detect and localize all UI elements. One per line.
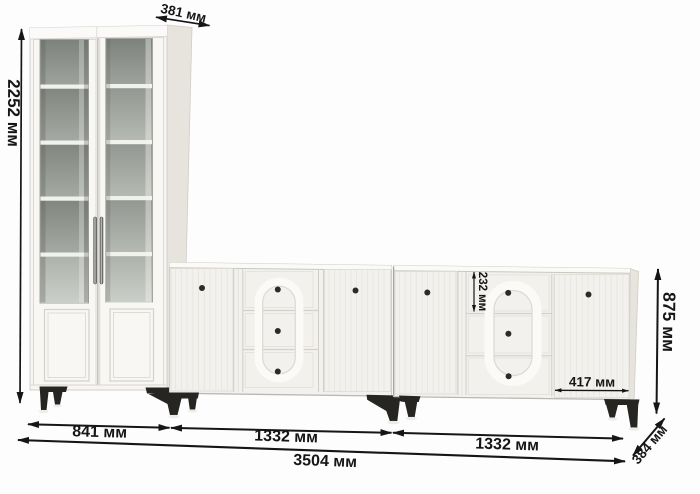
svg-text:232 мм: 232 мм <box>476 272 488 311</box>
svg-text:1332 мм: 1332 мм <box>254 428 318 447</box>
svg-text:841 мм: 841 мм <box>72 423 127 442</box>
svg-text:875 мм: 875 мм <box>659 292 680 352</box>
svg-text:1332 мм: 1332 мм <box>475 436 539 455</box>
svg-text:3504 мм: 3504 мм <box>293 452 357 471</box>
svg-text:2252 мм: 2252 мм <box>4 79 23 147</box>
svg-text:417 мм: 417 мм <box>569 374 615 389</box>
